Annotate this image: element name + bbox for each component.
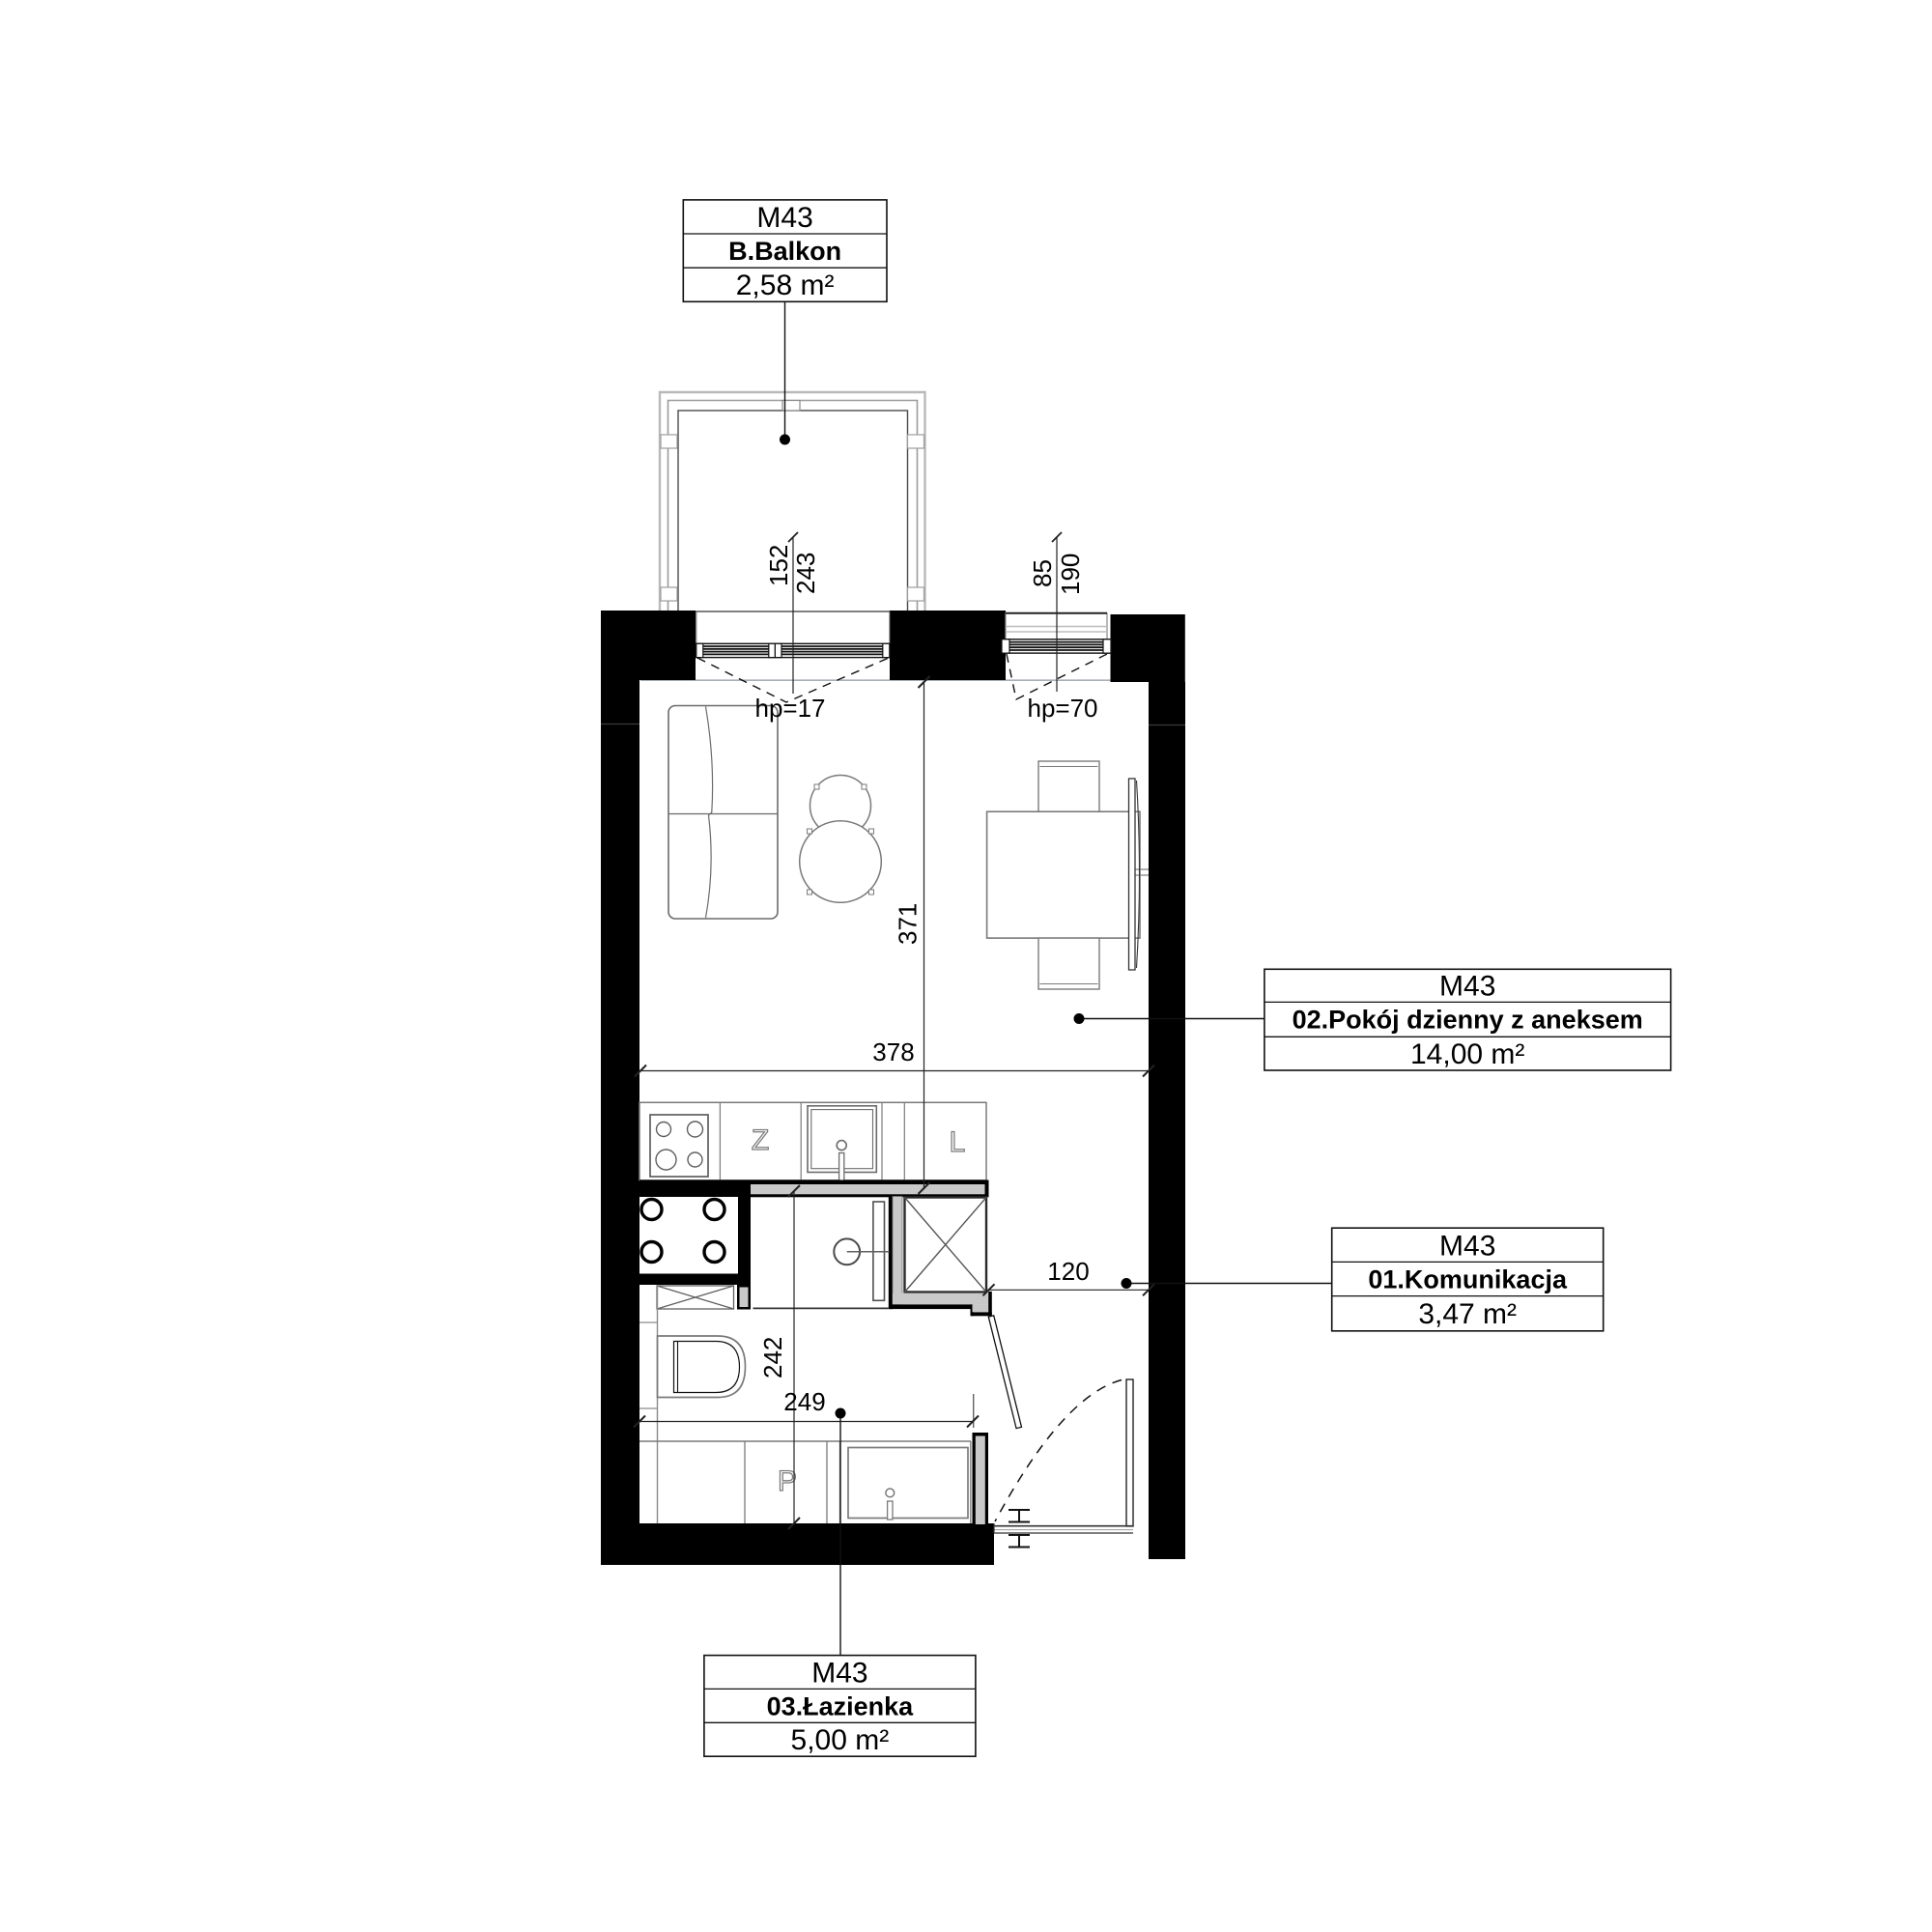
svg-text:M43: M43	[1439, 971, 1495, 1003]
svg-text:85: 85	[1028, 559, 1057, 587]
svg-text:L: L	[950, 1126, 966, 1158]
svg-text:03.Łazienka: 03.Łazienka	[767, 1692, 915, 1721]
svg-text:hp=70: hp=70	[1027, 694, 1097, 723]
svg-text:01.Komunikacja: 01.Komunikacja	[1368, 1265, 1568, 1294]
svg-text:190: 190	[1056, 554, 1085, 595]
svg-text:3,47 m²: 3,47 m²	[1418, 1298, 1517, 1330]
svg-text:M43: M43	[811, 1658, 867, 1690]
svg-text:B.Balkon: B.Balkon	[728, 237, 841, 266]
svg-text:02.Pokój dzienny z aneksem: 02.Pokój dzienny z aneksem	[1293, 1006, 1643, 1035]
svg-text:M43: M43	[756, 202, 812, 234]
svg-text:371: 371	[894, 903, 923, 945]
svg-text:152: 152	[764, 545, 793, 586]
svg-text:14,00 m²: 14,00 m²	[1410, 1038, 1524, 1070]
svg-text:120: 120	[1047, 1257, 1089, 1286]
svg-text:243: 243	[791, 553, 820, 594]
svg-text:5,00 m²: 5,00 m²	[791, 1724, 890, 1756]
svg-text:Z: Z	[752, 1124, 769, 1156]
svg-text:378: 378	[872, 1037, 914, 1066]
svg-text:M43: M43	[1439, 1231, 1495, 1263]
svg-text:hp=17: hp=17	[754, 694, 825, 723]
svg-text:242: 242	[758, 1337, 787, 1378]
svg-text:2,58 m²: 2,58 m²	[736, 270, 835, 301]
svg-text:249: 249	[783, 1387, 825, 1416]
